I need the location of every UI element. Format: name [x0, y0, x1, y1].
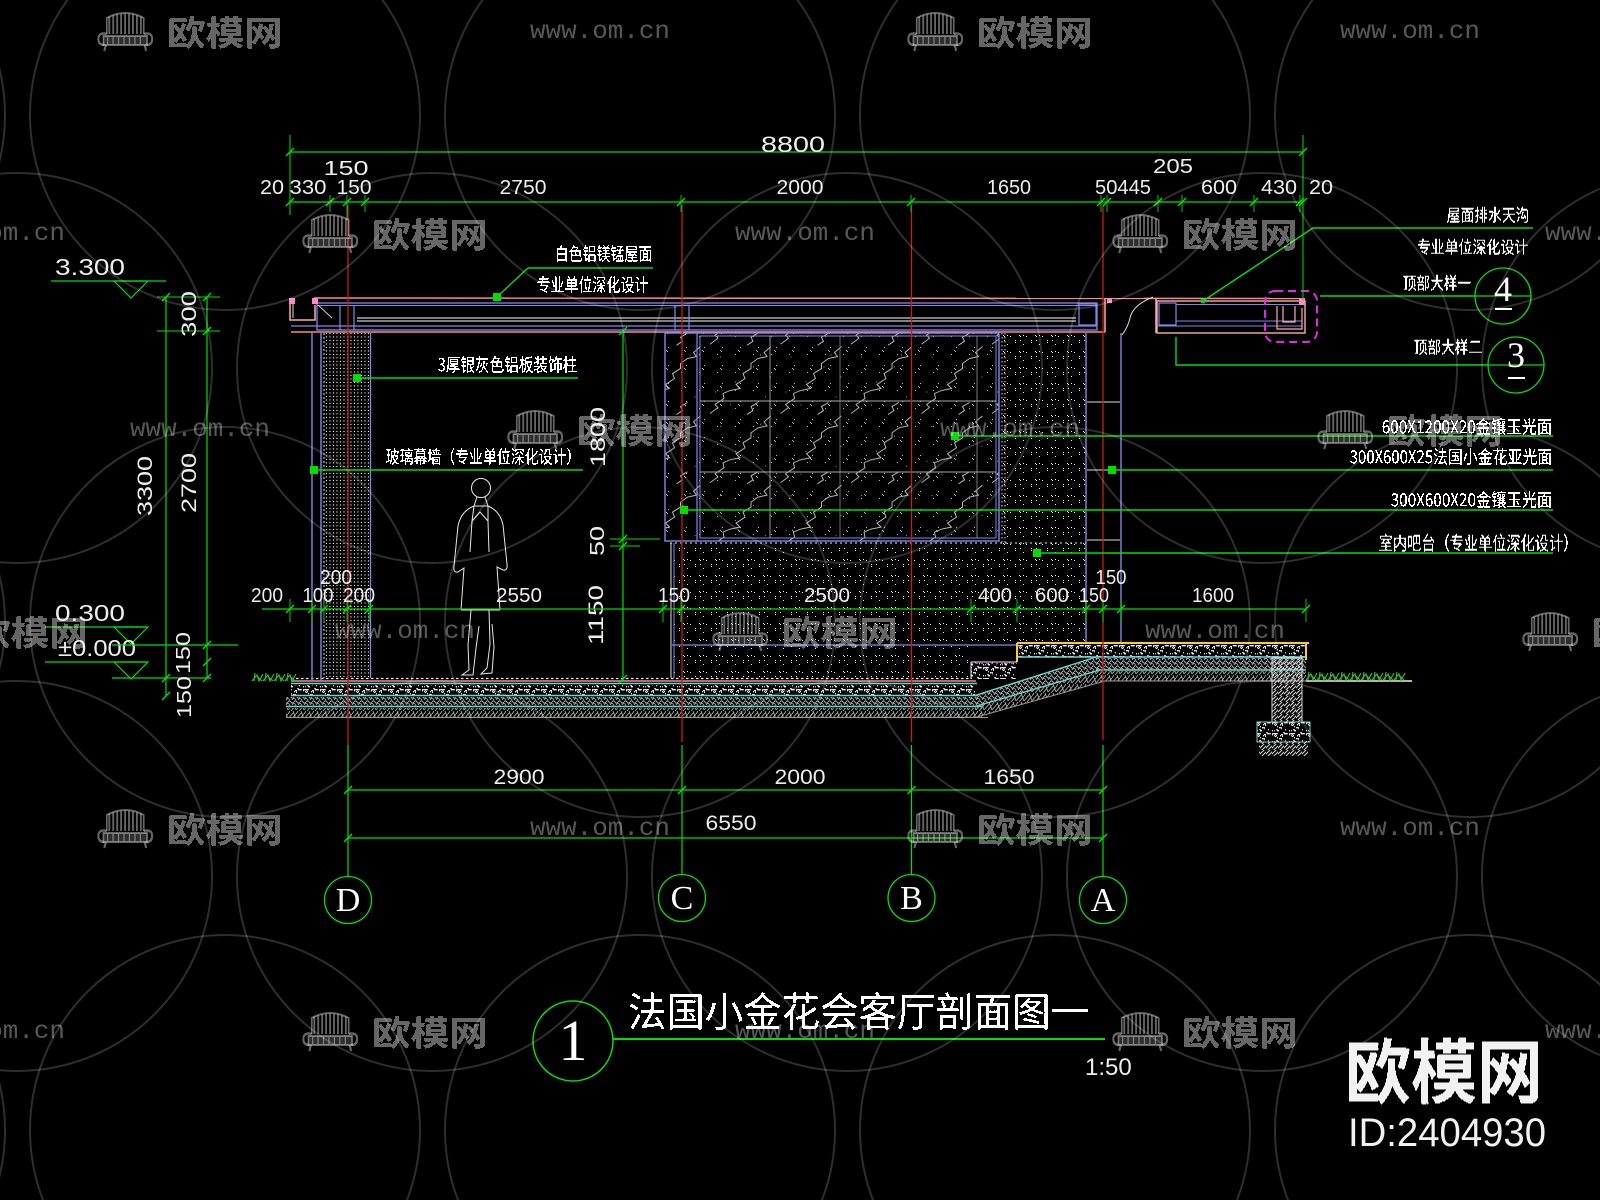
- svg-text:150: 150: [1096, 567, 1127, 589]
- svg-text:400: 400: [978, 585, 1012, 607]
- svg-text:B: B: [900, 880, 923, 917]
- svg-text:1:50: 1:50: [1085, 1054, 1132, 1081]
- svg-text:50: 50: [587, 526, 609, 556]
- svg-text:www.om.cn: www.om.cn: [735, 1017, 875, 1046]
- svg-text:ID:2404930: ID:2404930: [1348, 1111, 1546, 1155]
- svg-text:150: 150: [174, 676, 196, 718]
- svg-text:1600: 1600: [1192, 585, 1234, 607]
- svg-text:www.om.cn: www.om.cn: [1145, 617, 1285, 646]
- svg-text:C: C: [671, 880, 694, 917]
- svg-text:www.om.cn: www.om.cn: [530, 814, 670, 843]
- svg-text:200: 200: [251, 585, 283, 607]
- svg-text:www.om.cn: www.om.cn: [1545, 1017, 1600, 1046]
- svg-text:0.300: 0.300: [55, 600, 125, 626]
- svg-text:300: 300: [178, 291, 201, 337]
- svg-text:8800: 8800: [761, 132, 825, 157]
- svg-text:www.om.cn: www.om.cn: [1340, 814, 1480, 843]
- svg-text:50445: 50445: [1095, 177, 1151, 199]
- svg-text:3: 3: [1507, 335, 1525, 375]
- svg-text:6550: 6550: [706, 812, 757, 835]
- svg-text:2500: 2500: [804, 585, 850, 607]
- svg-text:2550: 2550: [496, 585, 542, 607]
- svg-text:150: 150: [173, 632, 195, 674]
- svg-text:www.om.cn: www.om.cn: [1340, 17, 1480, 46]
- svg-text:www.om.cn: www.om.cn: [0, 1017, 65, 1046]
- svg-text:www.om.cn: www.om.cn: [1545, 219, 1600, 248]
- svg-text:200: 200: [343, 585, 375, 607]
- svg-text:205: 205: [1153, 156, 1193, 178]
- svg-text:2000: 2000: [775, 766, 826, 789]
- svg-text:www.om.cn: www.om.cn: [130, 415, 270, 444]
- svg-text:330: 330: [290, 177, 327, 199]
- svg-text:www.om.cn: www.om.cn: [0, 219, 65, 248]
- svg-text:20: 20: [260, 177, 284, 199]
- svg-text:1: 1: [559, 1008, 588, 1073]
- svg-text:1650: 1650: [984, 766, 1035, 789]
- svg-text:2900: 2900: [494, 766, 545, 789]
- svg-text:www.om.cn: www.om.cn: [335, 617, 475, 646]
- svg-text:D: D: [336, 882, 361, 919]
- svg-text:www.om.cn: www.om.cn: [735, 219, 875, 248]
- svg-text:4: 4: [1494, 269, 1512, 309]
- svg-text:±0.000: ±0.000: [58, 635, 136, 661]
- svg-text:1150: 1150: [585, 585, 608, 645]
- svg-text:A: A: [1091, 882, 1116, 919]
- svg-text:150: 150: [658, 585, 690, 607]
- svg-text:www.om.cn: www.om.cn: [940, 415, 1080, 444]
- svg-text:600: 600: [1035, 585, 1069, 607]
- svg-text:1650: 1650: [987, 177, 1031, 199]
- svg-text:www.om.cn: www.om.cn: [530, 17, 670, 46]
- svg-text:2700: 2700: [178, 453, 201, 513]
